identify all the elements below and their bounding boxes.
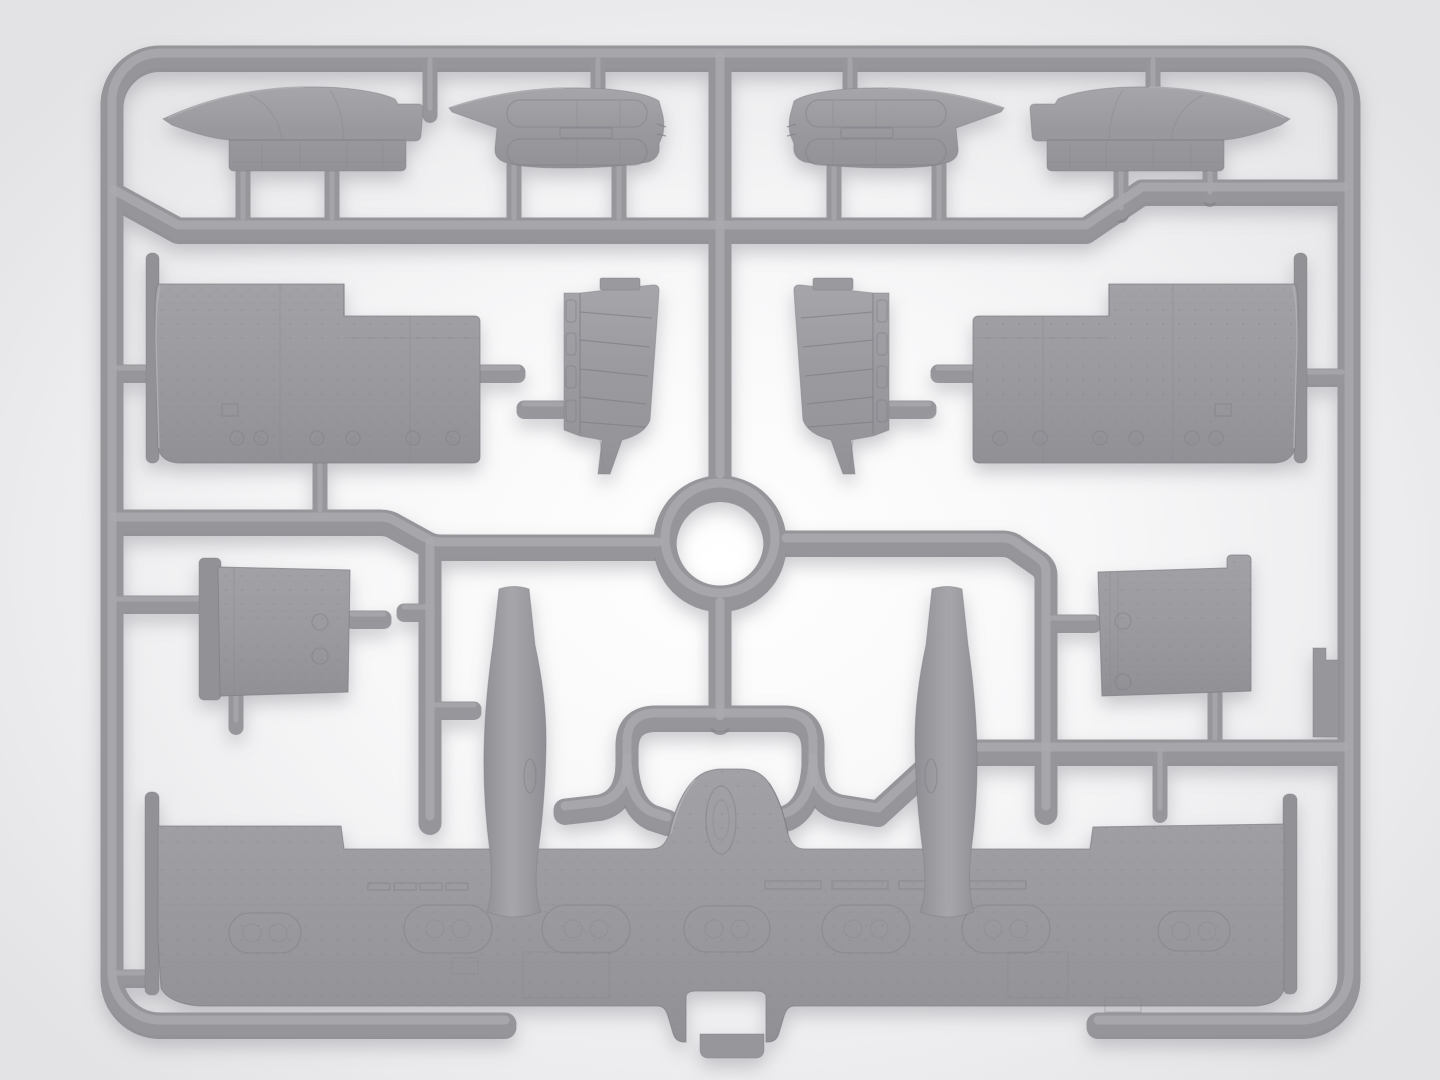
part-ribbed-bulkhead-left xyxy=(564,278,659,474)
part-cowling-bottom-left xyxy=(449,88,666,168)
part-access-panel-left xyxy=(199,558,350,700)
part-tail-boom-left xyxy=(484,587,546,918)
sprue-assembly xyxy=(112,53,1349,1058)
part-tail-boom-right xyxy=(915,587,977,918)
part-cowling-top-left xyxy=(163,87,423,171)
part-blade-stub xyxy=(1313,648,1339,737)
part-ribbed-bulkhead-right xyxy=(794,278,889,474)
part-fuselage-panel-right xyxy=(973,253,1307,463)
wing-center-tab xyxy=(700,1034,764,1058)
part-cowling-top-right xyxy=(1030,87,1290,171)
part-cowling-bottom-right xyxy=(787,88,1004,168)
part-fuselage-panel-left xyxy=(146,253,480,463)
sprue-photo xyxy=(0,0,1440,1080)
part-access-panel-right xyxy=(1098,555,1251,696)
lower-right-runner xyxy=(813,751,1344,812)
